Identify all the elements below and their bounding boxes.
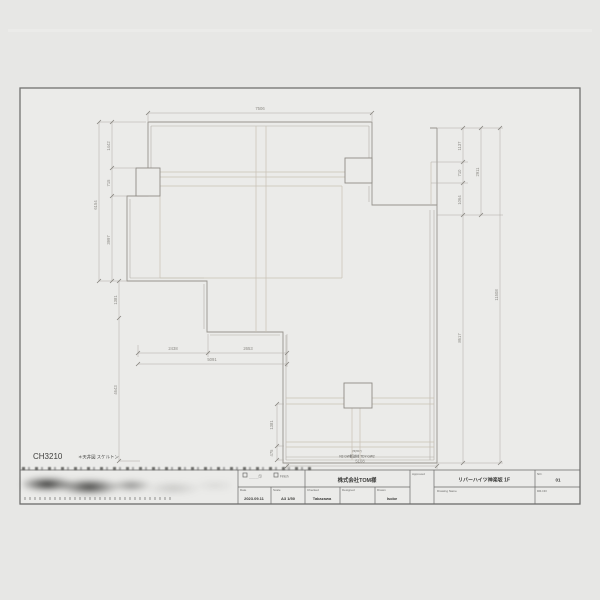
note-approx: (≒h57): [352, 449, 362, 453]
dim-left-low-1: 1381: [113, 295, 118, 305]
scale-value: A3 1/50: [281, 496, 296, 501]
dim-left-3: 3997: [106, 235, 111, 245]
drawing-code: CH3210: [33, 452, 63, 461]
drno-label: DR-NO: [537, 489, 547, 493]
checkbox-2-label: Finish: [280, 475, 289, 479]
company-name: 株式会社TOM様: [338, 476, 377, 484]
dim-mid-2: 475: [269, 449, 274, 457]
column-top-left: [136, 168, 160, 196]
dim-bottom-total: 5091: [207, 357, 217, 362]
scan-seam: [8, 29, 592, 32]
no-value: 01: [555, 478, 561, 483]
drawing-name-label: Drawing Name: [437, 489, 457, 493]
scale-label: Scale: [273, 488, 281, 492]
designed-label: Designed: [342, 488, 355, 492]
drawing-name-value: リバーハイツ神楽坂 1F: [458, 477, 510, 484]
dim-bottom-2: 2653: [243, 346, 253, 351]
redacted-faint-text-row: [24, 497, 174, 500]
dim-mid-1: 1381: [269, 420, 274, 430]
cad-sheet-svg: 7506 1442 715 3997 6154 1381 4643 2438 2…: [0, 0, 600, 600]
dim-top: 7506: [255, 106, 265, 111]
column-bottom: [344, 383, 372, 408]
drawn-value: Isobe: [387, 496, 398, 501]
dim-left-2: 715: [106, 179, 111, 187]
redacted-stamp: [22, 472, 232, 499]
dim-left-1: 1442: [106, 141, 111, 151]
dim-right-2: 710: [457, 169, 462, 177]
dim-bottom-1: 2438: [168, 346, 178, 351]
dim-bottom-low: 5108: [355, 459, 365, 464]
dim-right-overall: 11508: [494, 289, 499, 301]
drawing-code-note: ＊天井図 スケルトン: [78, 454, 119, 461]
dim-right-long: 8617: [457, 333, 462, 343]
checkbox-1-label: ＿＿＿印: [249, 474, 262, 479]
checked-label: Checked: [307, 488, 319, 492]
dim-right-total: 2911: [475, 167, 480, 177]
no-label: NO.: [537, 472, 543, 476]
column-top-right: [345, 158, 372, 183]
date-label: Date: [240, 488, 247, 492]
dim-left-total: 6154: [93, 200, 98, 210]
date-value: 2023.09.11: [244, 496, 265, 501]
redacted-dotted-text-row: [22, 467, 314, 470]
dim-right-3: 1064: [457, 195, 462, 205]
approved-label: Approved: [412, 472, 425, 476]
checked-value: Takazawa: [313, 496, 332, 501]
dim-right-1: 1137: [457, 141, 462, 151]
dim-left-low-2: 4643: [113, 385, 118, 395]
screenshot-root: 7506 1442 715 3997 6154 1381 4643 2438 2…: [0, 0, 600, 600]
note-material: N3 GW断熱材 TDY-GW2: [339, 454, 375, 459]
drawn-label: Drawn: [377, 488, 386, 492]
